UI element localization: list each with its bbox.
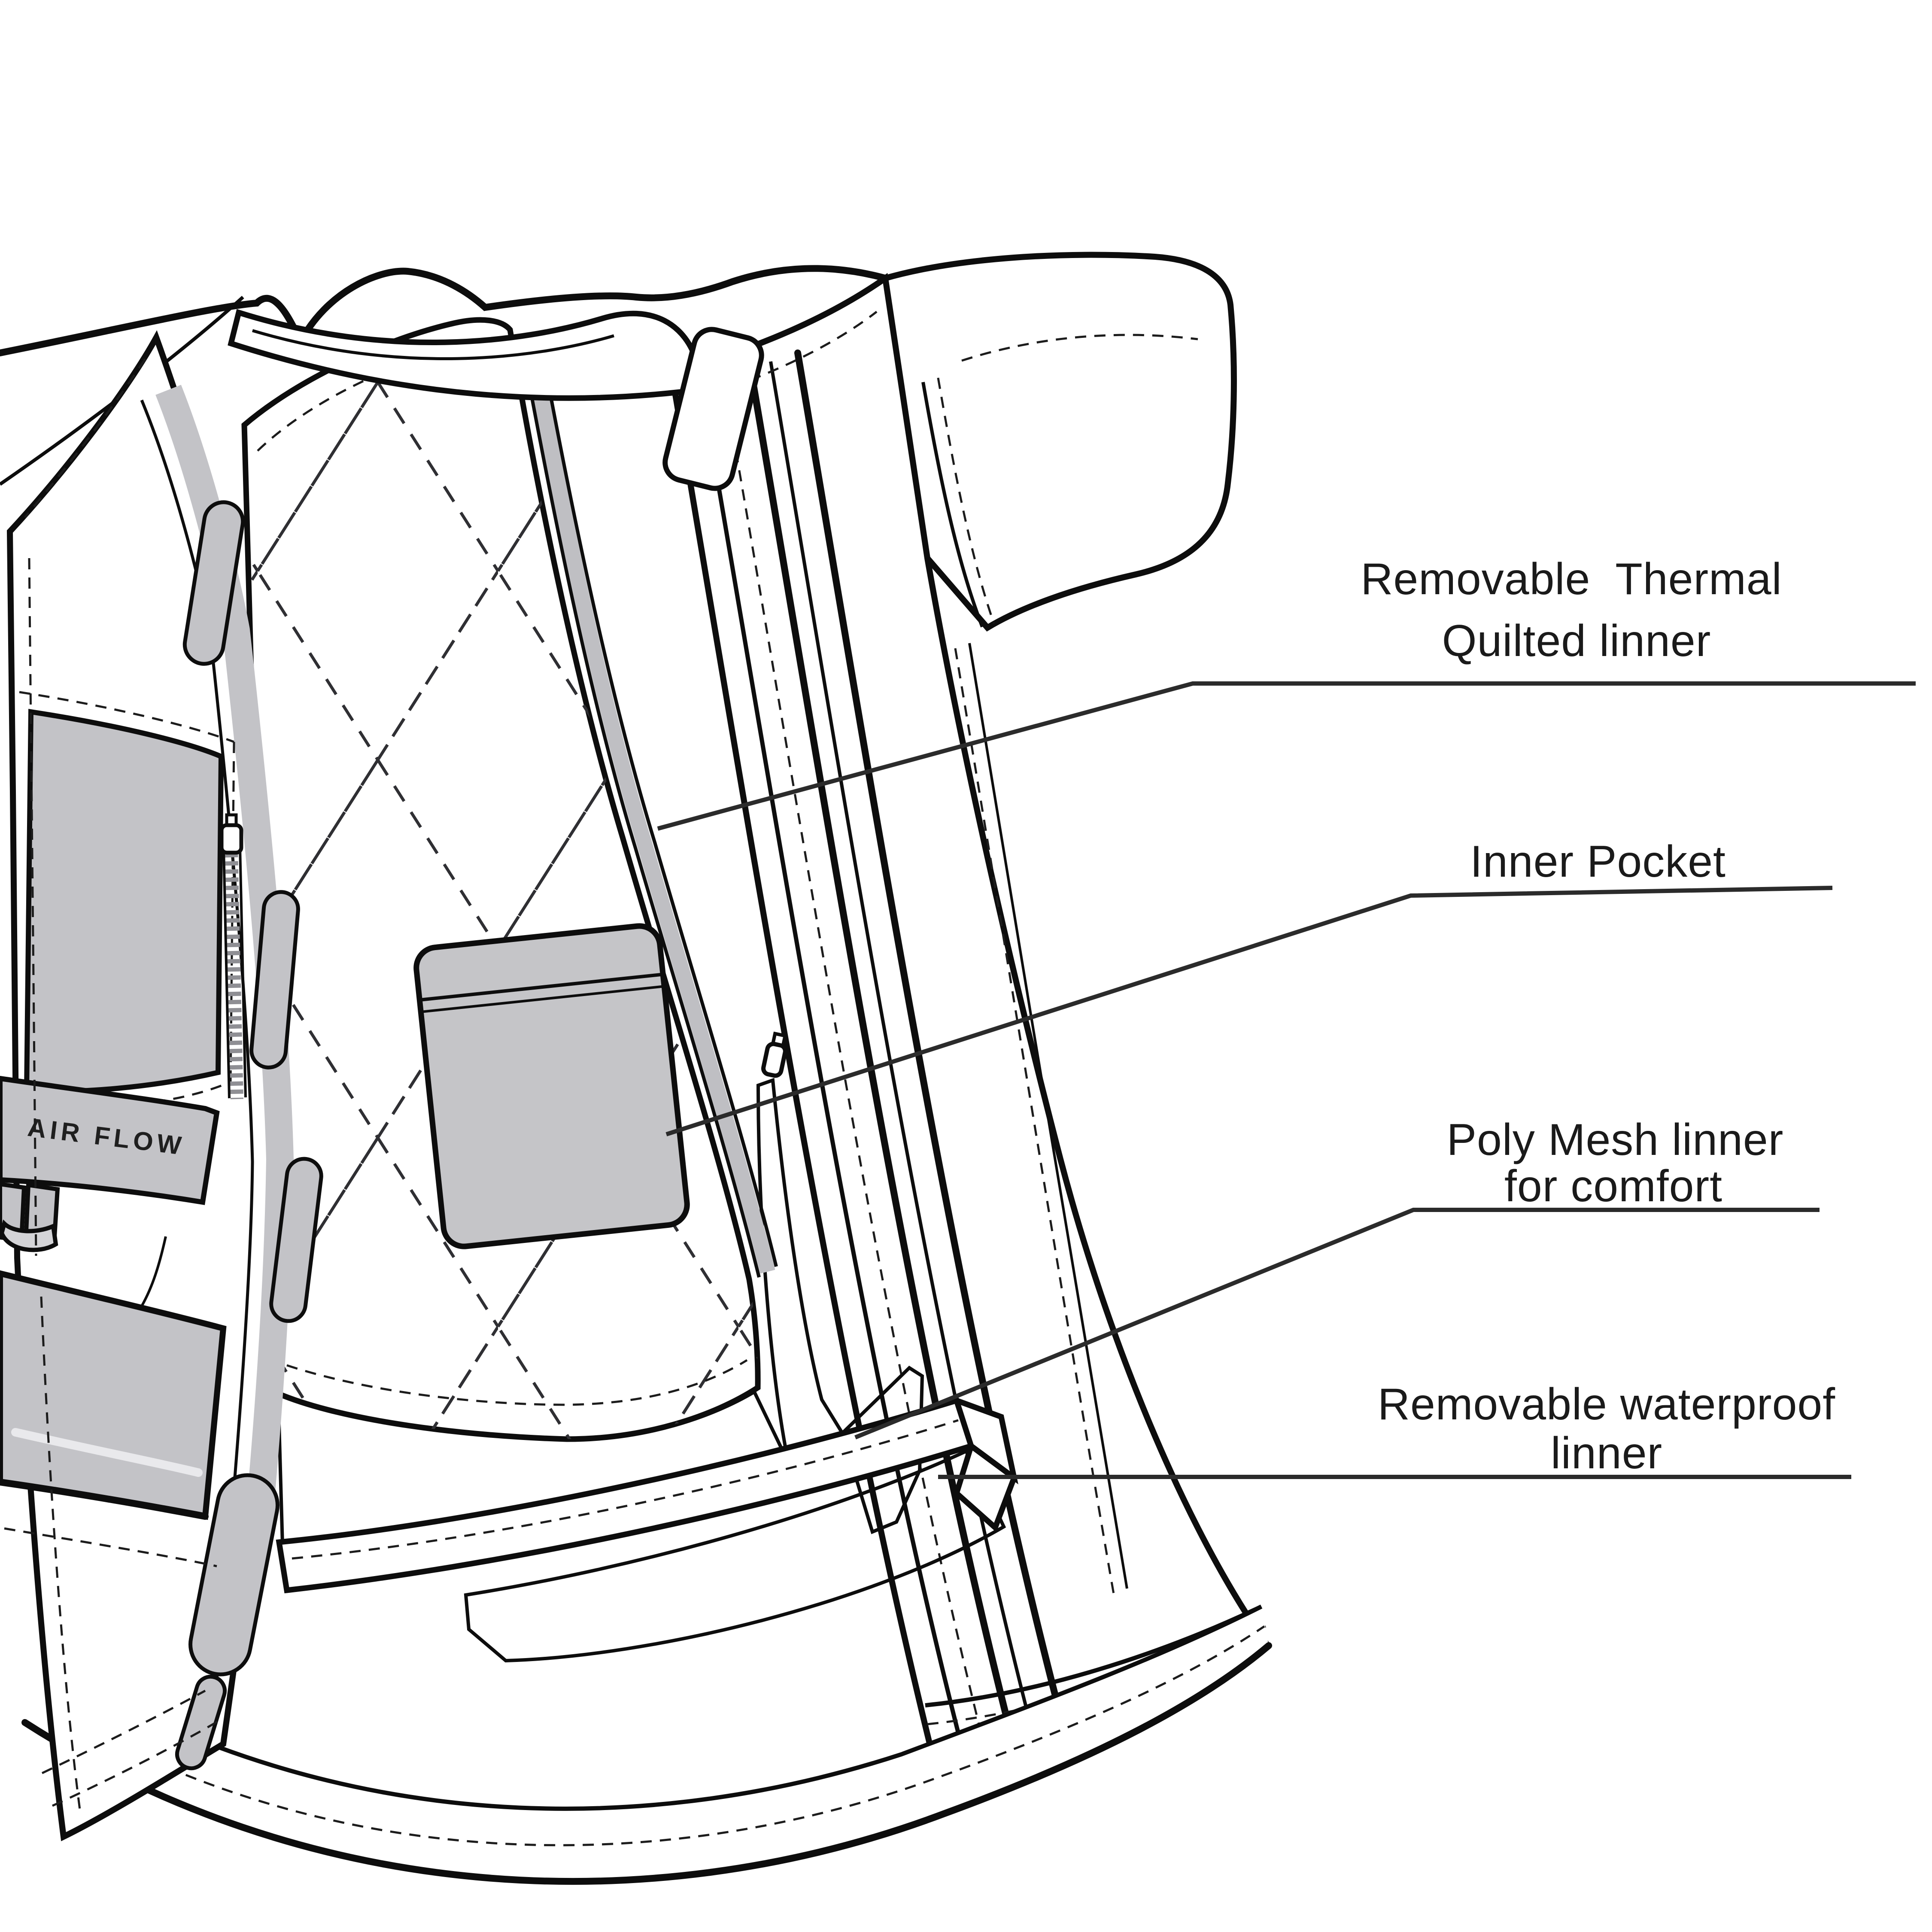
callout-inner-pocket: Inner Pocket <box>1470 837 1726 887</box>
callout-thermal-line2: Quilted linner <box>1442 616 1711 666</box>
right-sleeve <box>885 255 1234 628</box>
jacket-technical-sketch: AIR FLOW Re <box>0 0 1932 1932</box>
liner-zipper-pull <box>762 1033 788 1077</box>
callout-thermal-line1: Removable Thermal <box>1361 554 1782 604</box>
chest-pocket-backing <box>27 712 221 1091</box>
inner-pocket <box>414 924 689 1249</box>
callout-poly-mesh-line1: Poly Mesh linner <box>1447 1115 1784 1165</box>
callout-poly-mesh-line2: for comfort <box>1504 1161 1722 1211</box>
strap-buckle <box>0 1184 58 1250</box>
callout-waterproof-line2: linner <box>1551 1428 1662 1478</box>
jacket-liner-diagram: AIR FLOW Re <box>0 0 1932 1932</box>
callout-waterproof-line1: Removable waterproof <box>1378 1379 1835 1429</box>
